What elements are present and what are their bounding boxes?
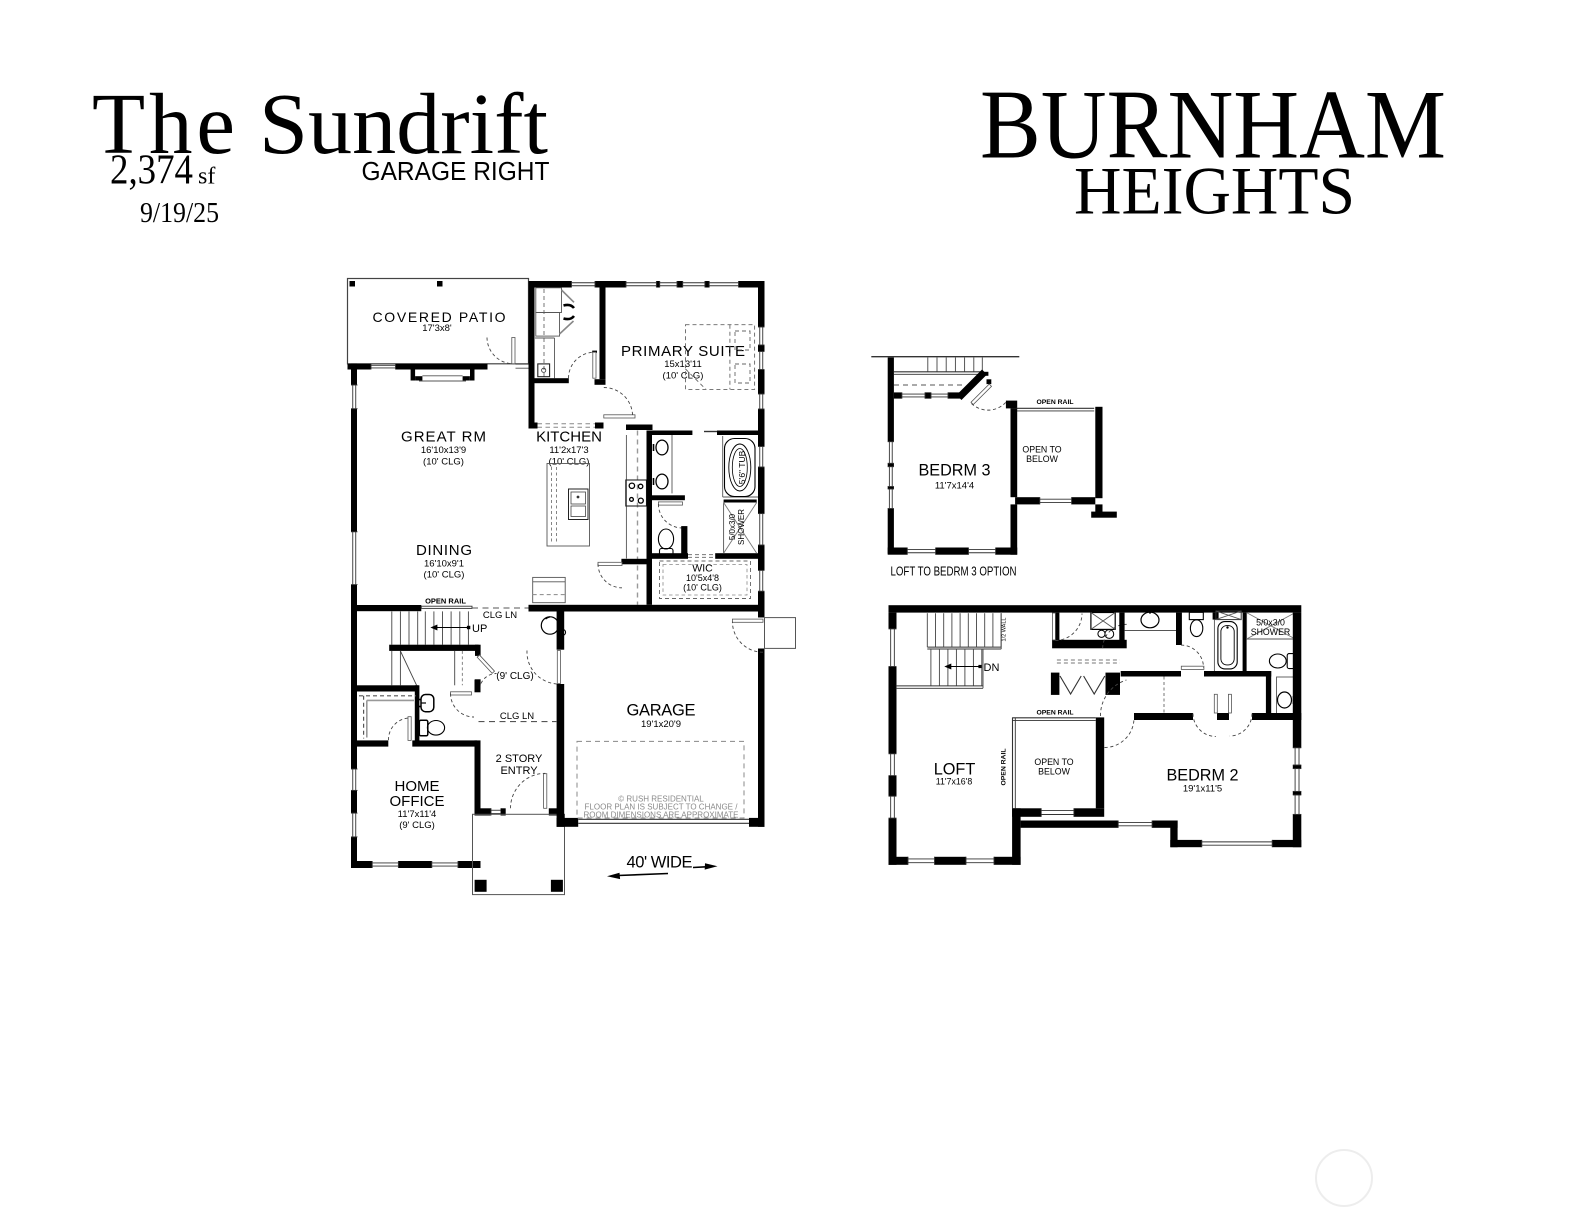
svg-text:DINING: DINING bbox=[416, 542, 472, 559]
svg-text:17'3x8': 17'3x8' bbox=[422, 323, 452, 334]
svg-text:BELOW: BELOW bbox=[1026, 454, 1058, 464]
svg-text:(10' CLG): (10' CLG) bbox=[683, 583, 722, 593]
svg-text:LOFT TO BEDRM 3 OPTION: LOFT TO BEDRM 3 OPTION bbox=[891, 565, 1017, 579]
svg-text:OFFICE: OFFICE bbox=[390, 793, 445, 810]
svg-text:5/0x3/0: 5/0x3/0 bbox=[728, 513, 737, 540]
svg-text:(9' CLG): (9' CLG) bbox=[496, 671, 533, 682]
svg-text:11'7x11'4: 11'7x11'4 bbox=[398, 809, 437, 820]
svg-text:OPEN RAIL: OPEN RAIL bbox=[1036, 710, 1073, 717]
svg-text:OPEN RAIL: OPEN RAIL bbox=[1036, 399, 1073, 406]
svg-text:ENTRY: ENTRY bbox=[500, 765, 538, 777]
svg-text:19'1x11'5: 19'1x11'5 bbox=[1183, 784, 1222, 795]
svg-text:ROOM DIMENSIONS ARE APPROXIMAT: ROOM DIMENSIONS ARE APPROXIMATE bbox=[584, 811, 739, 820]
svg-text:OPEN TO: OPEN TO bbox=[1022, 445, 1061, 455]
svg-text:OPEN RAIL: OPEN RAIL bbox=[1001, 748, 1008, 785]
svg-text:2 STORY: 2 STORY bbox=[496, 753, 543, 765]
svg-text:40' WIDE: 40' WIDE bbox=[627, 854, 693, 872]
svg-text:GARAGE RIGHT: GARAGE RIGHT bbox=[362, 156, 550, 186]
svg-text:SHOWER: SHOWER bbox=[1251, 627, 1291, 637]
svg-text:10'5x4'8: 10'5x4'8 bbox=[686, 573, 719, 583]
svg-text:11'7x16'8: 11'7x16'8 bbox=[936, 777, 973, 787]
svg-text:SHOWER: SHOWER bbox=[737, 509, 746, 545]
svg-text:GARAGE: GARAGE bbox=[627, 702, 696, 720]
svg-text:BEDRM 2: BEDRM 2 bbox=[1167, 767, 1239, 785]
svg-text:GREAT RM: GREAT RM bbox=[401, 429, 486, 446]
svg-text:CLG LN: CLG LN bbox=[483, 610, 517, 621]
svg-text:(10' CLG): (10' CLG) bbox=[424, 570, 465, 581]
svg-text:11'2x17'3: 11'2x17'3 bbox=[549, 445, 588, 456]
svg-text:(9' CLG): (9' CLG) bbox=[399, 820, 435, 831]
svg-text:(10' CLG): (10' CLG) bbox=[663, 371, 704, 382]
svg-text:DN: DN bbox=[984, 662, 1000, 674]
svg-text:1/2 WALL: 1/2 WALL bbox=[1002, 618, 1008, 642]
svg-text:HEIGHTS: HEIGHTS bbox=[1074, 153, 1355, 229]
svg-text:CLG LN: CLG LN bbox=[500, 711, 534, 722]
svg-text:15x13'11: 15x13'11 bbox=[664, 359, 702, 370]
svg-text:OPEN RAIL: OPEN RAIL bbox=[425, 597, 466, 606]
svg-text:(10' CLG): (10' CLG) bbox=[549, 457, 590, 468]
svg-text:BELOW: BELOW bbox=[1038, 767, 1070, 777]
svg-text:5/0x3/0: 5/0x3/0 bbox=[1256, 618, 1285, 628]
svg-text:KITCHEN: KITCHEN bbox=[536, 429, 602, 446]
svg-text:(10' CLG): (10' CLG) bbox=[423, 457, 464, 468]
svg-text:19'1x20'9: 19'1x20'9 bbox=[641, 719, 681, 730]
svg-text:9/19/25: 9/19/25 bbox=[140, 198, 219, 229]
svg-text:5’6" TUB: 5’6" TUB bbox=[737, 450, 747, 484]
svg-text:UP: UP bbox=[472, 623, 487, 635]
svg-text:PRIMARY SUITE: PRIMARY SUITE bbox=[621, 343, 745, 360]
svg-text:11'7x14'4: 11'7x14'4 bbox=[935, 481, 974, 492]
svg-text:16'10x13'9: 16'10x13'9 bbox=[421, 445, 466, 456]
svg-text:2,374: 2,374 bbox=[110, 148, 193, 194]
svg-text:OPEN TO: OPEN TO bbox=[1034, 757, 1073, 767]
svg-text:sf: sf bbox=[198, 164, 215, 190]
svg-text:16'10x9'1: 16'10x9'1 bbox=[424, 559, 464, 570]
svg-text:BEDRM 3: BEDRM 3 bbox=[919, 462, 991, 480]
